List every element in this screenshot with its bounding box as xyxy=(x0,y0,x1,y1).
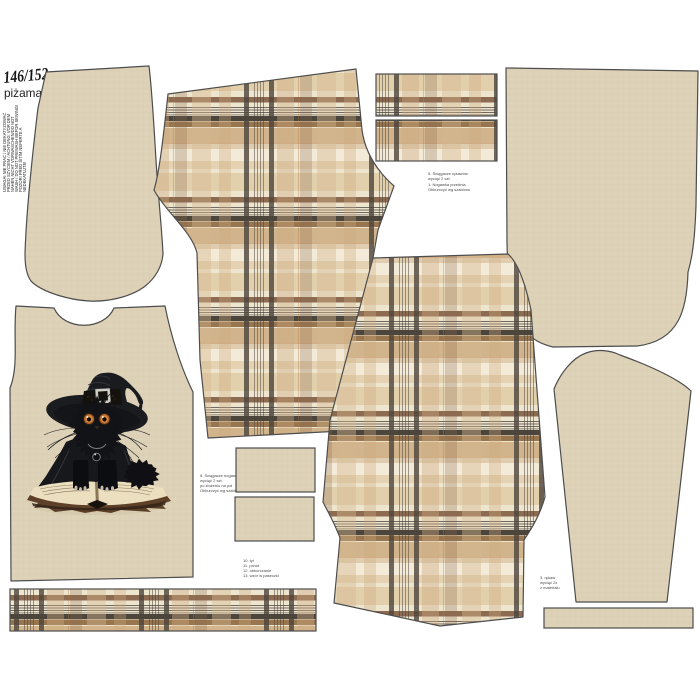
svg-text:wyciąć 2 szt.: wyciąć 2 szt. xyxy=(428,176,451,181)
svg-text:NEDEKATUJTE!: NEDEKATUJTE! xyxy=(22,162,27,192)
svg-text:z materiału: z materiału xyxy=(540,585,560,590)
svg-text:Obkurczyć wg szablonu: Obkurczyć wg szablonu xyxy=(428,187,470,192)
svg-text:piżama: piżama xyxy=(4,86,42,100)
svg-text:13. wzór w paseczki: 13. wzór w paseczki xyxy=(243,573,279,578)
svg-text:146/152: 146/152 xyxy=(3,64,50,87)
